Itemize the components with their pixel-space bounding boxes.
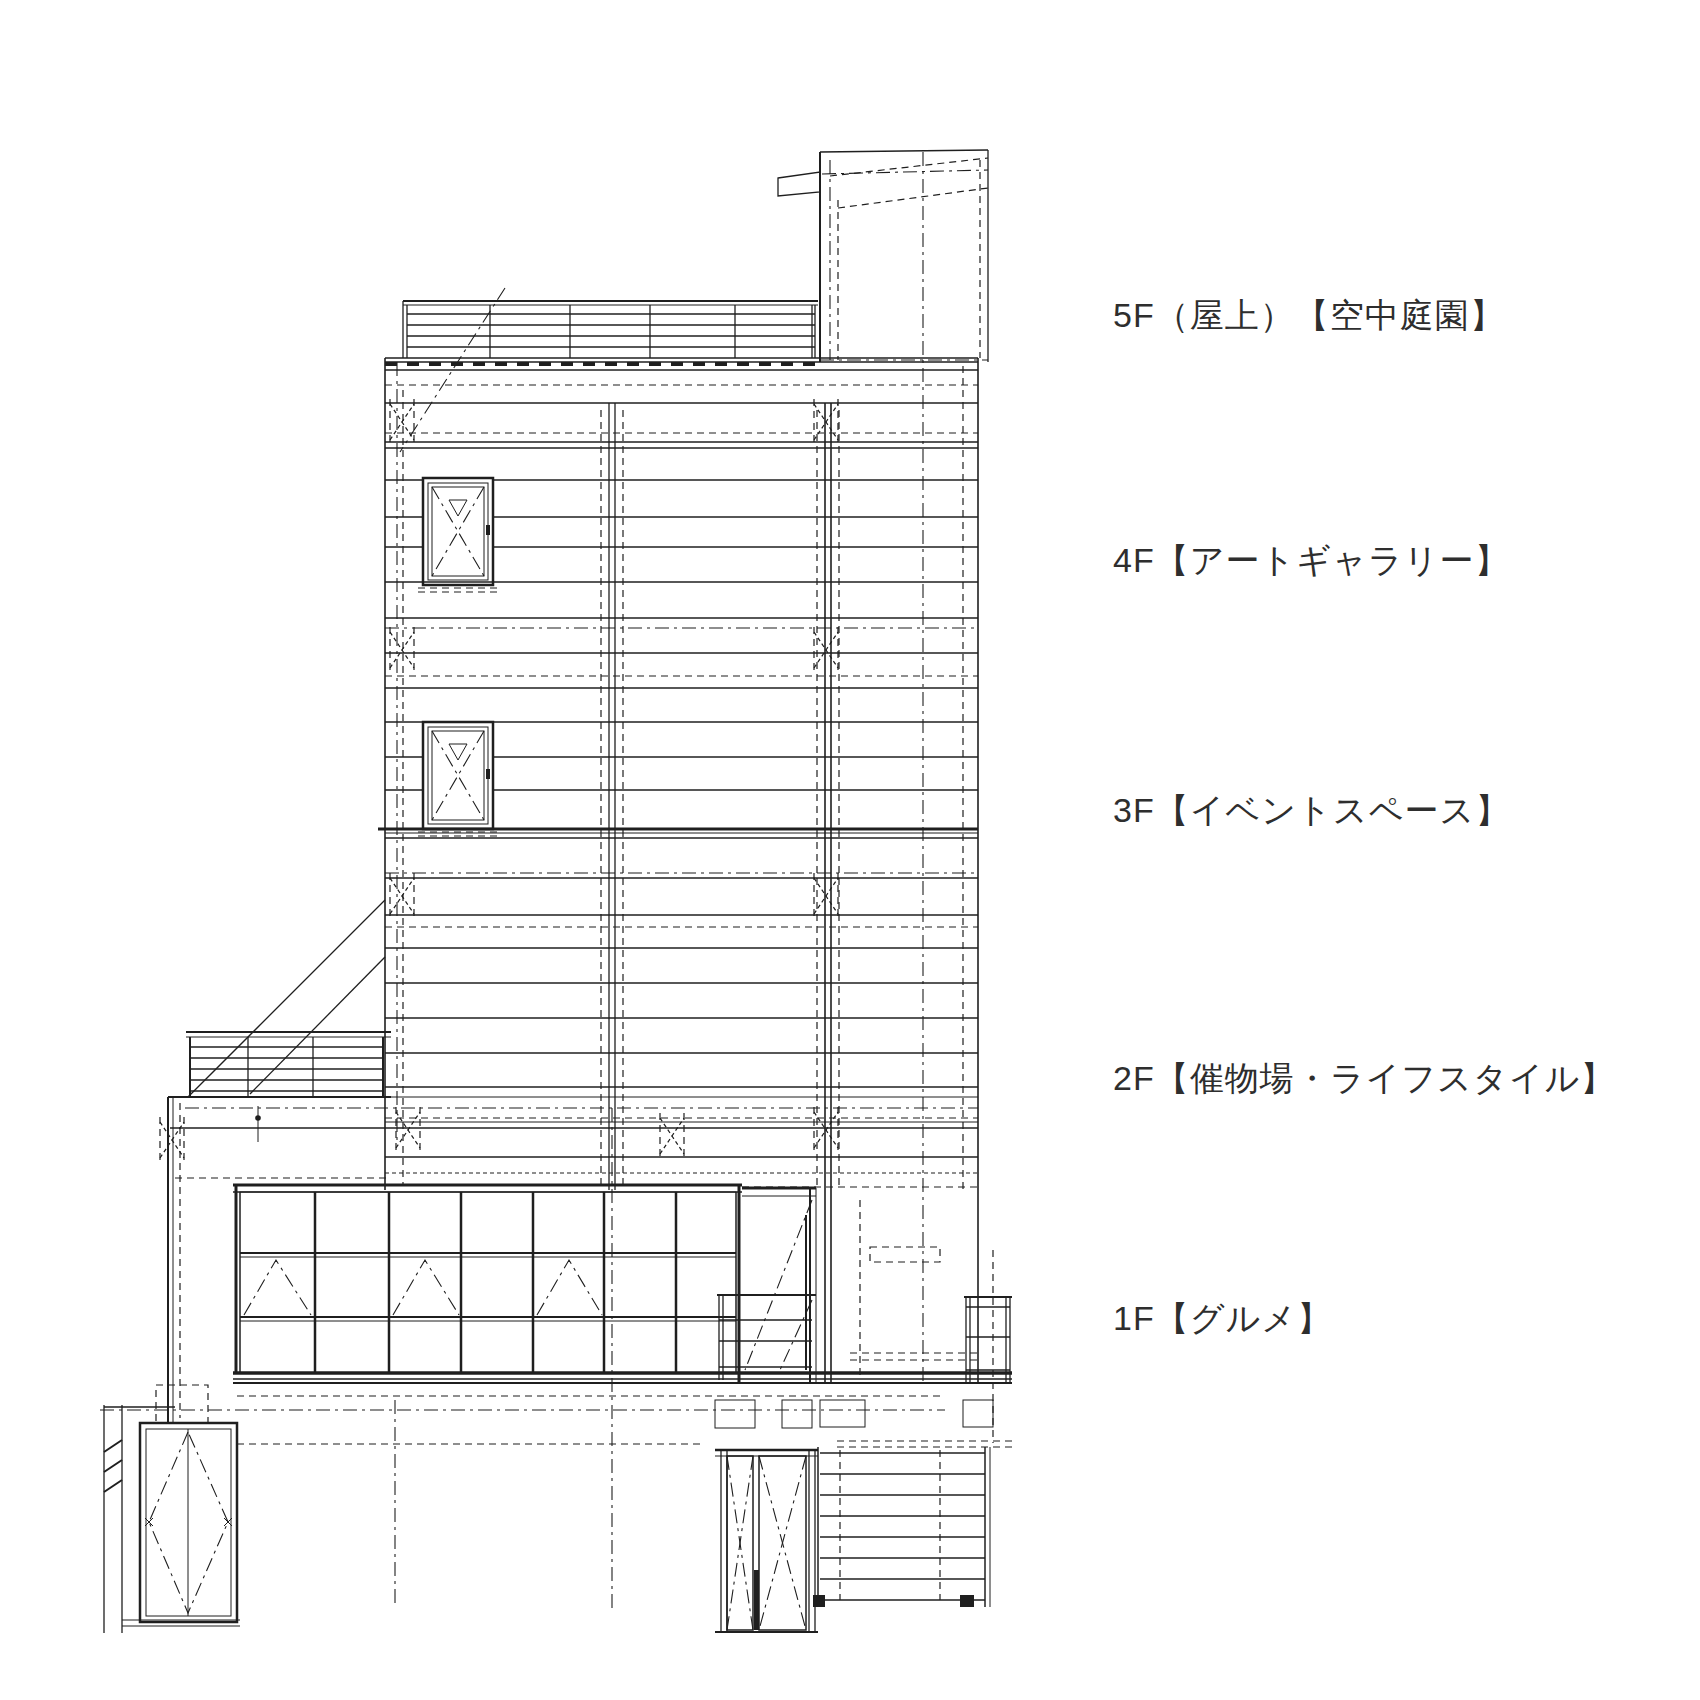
floor-label-4f: 4F【アートギャラリー】: [1113, 541, 1509, 579]
facade-siding: [170, 358, 978, 1187]
floor-label-1f: 1F【グルメ】: [1113, 1299, 1332, 1337]
column-cross-symbols: [160, 399, 838, 1163]
roof-flag-bracket: [778, 172, 820, 196]
floor-label-2f: 2F【催物場・ライフスタイル】: [1113, 1059, 1615, 1097]
penthouse-structure: [778, 150, 988, 362]
floor-labels: 5F（屋上）【空中庭園】 4F【アートギャラリー】 3F【イベントスペース】 2…: [1113, 296, 1615, 1337]
elevation-drawing: 5F（屋上）【空中庭園】 4F【アートギャラリー】 3F【イベントスペース】 2…: [0, 0, 1700, 1700]
basement-door: [715, 1400, 818, 1632]
exterior-stair-railing: [964, 1297, 1012, 1383]
floor-label-5f: 5F（屋上）【空中庭園】: [1113, 296, 1505, 334]
floor-label-3f: 3F【イベントスペース】: [1113, 791, 1510, 829]
window-3f: [418, 722, 498, 836]
foundation-box: [122, 1385, 240, 1626]
elevation-page: 5F（屋上）【空中庭園】 4F【アートギャラリー】 3F【イベントスペース】 2…: [0, 0, 1700, 1700]
basement-stairs: [813, 1400, 993, 1607]
entrance-railing: [717, 1295, 816, 1380]
storefront-glazing-1f: [233, 1185, 742, 1383]
annex-wall-left: [168, 1097, 180, 1423]
window-4f: [418, 478, 498, 592]
right-wall-1f: [850, 1247, 978, 1360]
wall-sign-outline: [870, 1247, 940, 1262]
balcony-2f: [168, 900, 391, 1142]
entrance-bay-1f: [717, 1188, 816, 1383]
